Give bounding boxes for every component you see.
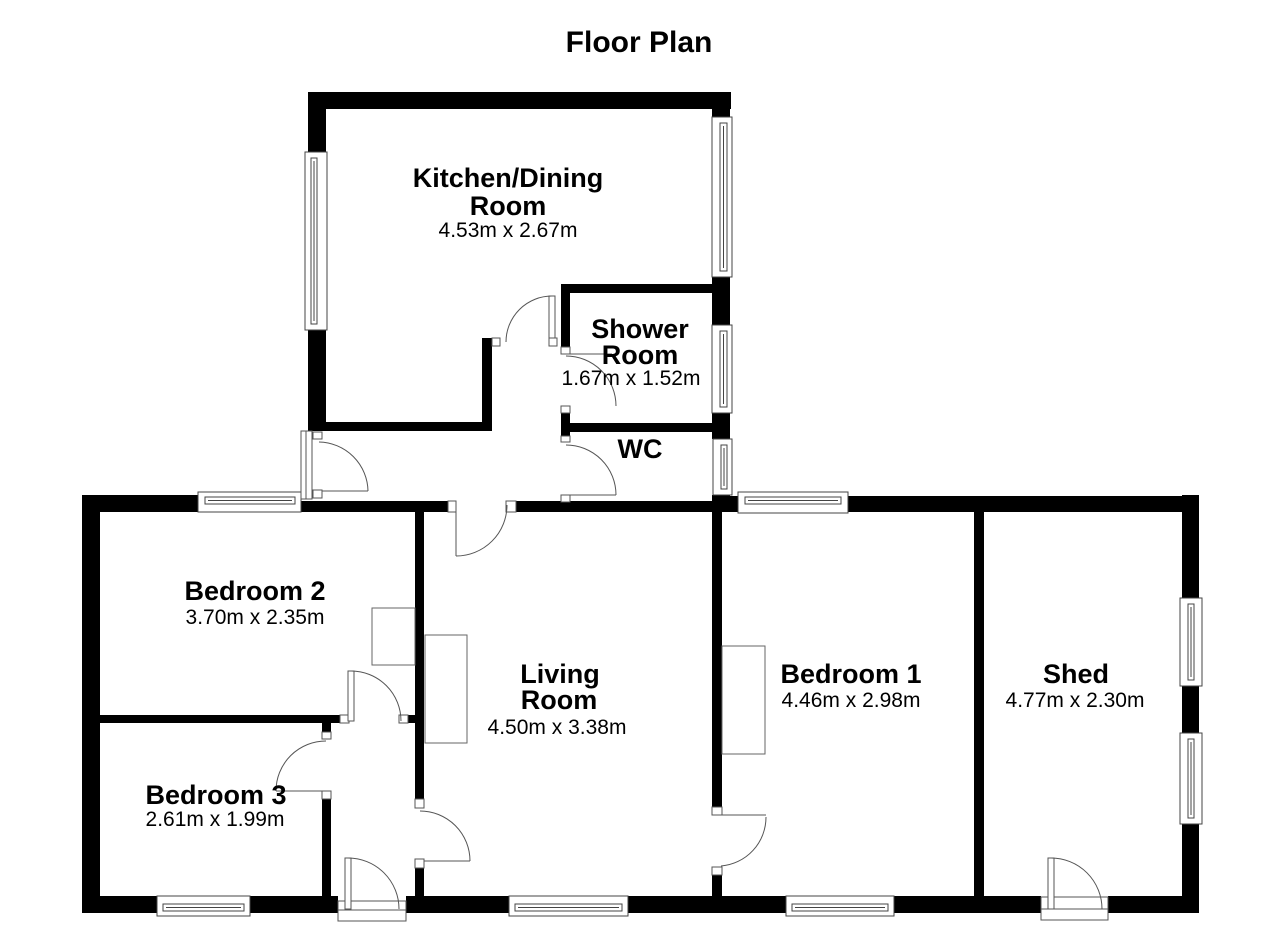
- svg-text:WC: WC: [618, 434, 663, 464]
- svg-text:4.46m x 2.98m: 4.46m x 2.98m: [782, 689, 921, 712]
- svg-text:4.53m x 2.67m: 4.53m x 2.67m: [439, 219, 578, 242]
- svg-text:Room: Room: [521, 685, 598, 715]
- svg-text:1.67m x 1.52m: 1.67m x 1.52m: [562, 367, 701, 390]
- svg-text:Bedroom 1: Bedroom 1: [780, 659, 921, 689]
- svg-text:Bedroom 2: Bedroom 2: [184, 576, 325, 606]
- svg-text:2.61m x 1.99m: 2.61m x 1.99m: [146, 808, 285, 831]
- svg-text:4.50m x 3.38m: 4.50m x 3.38m: [488, 716, 627, 739]
- svg-text:Room: Room: [470, 191, 547, 221]
- svg-text:Room: Room: [602, 340, 679, 370]
- svg-text:Floor Plan: Floor Plan: [566, 26, 713, 59]
- svg-text:Shed: Shed: [1043, 659, 1109, 689]
- svg-text:Bedroom 3: Bedroom 3: [145, 780, 286, 810]
- svg-text:Kitchen/Dining: Kitchen/Dining: [413, 163, 604, 193]
- svg-text:4.77m x 2.30m: 4.77m x 2.30m: [1006, 689, 1145, 712]
- svg-text:3.70m x 2.35m: 3.70m x 2.35m: [186, 606, 325, 629]
